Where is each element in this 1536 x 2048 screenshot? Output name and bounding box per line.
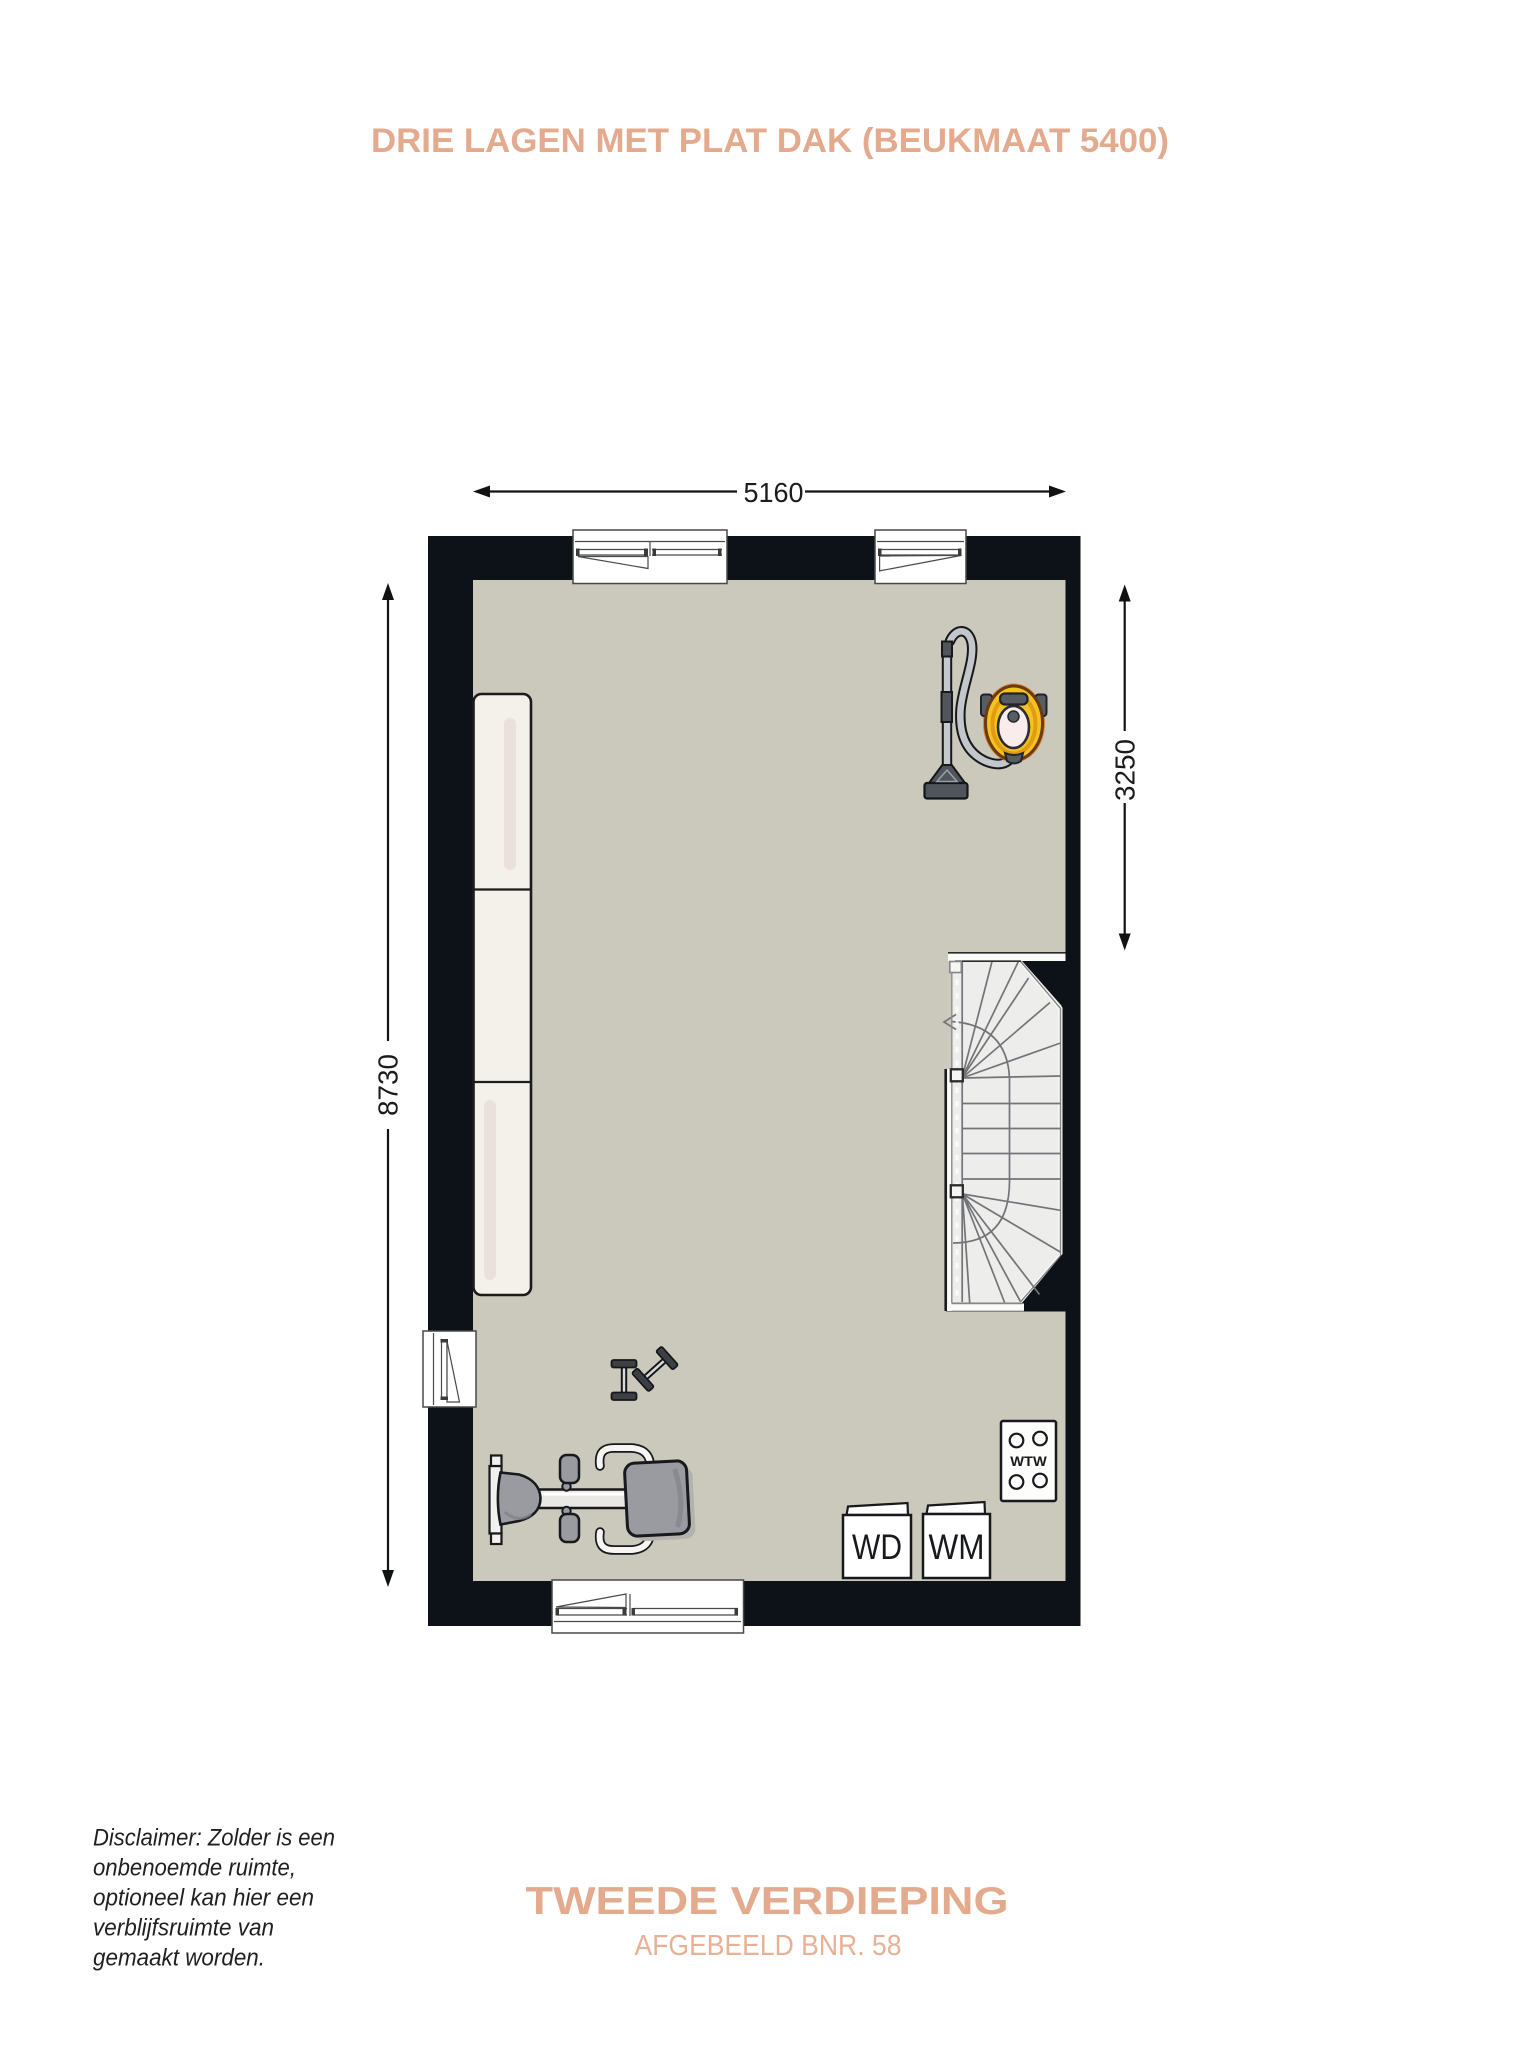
svg-text:gemaakt worden.: gemaakt worden. — [93, 1945, 265, 1972]
svg-text:WD: WD — [852, 1528, 902, 1567]
svg-text:verblijfsruimte van: verblijfsruimte van — [93, 1915, 274, 1942]
svg-text:optioneel kan hier een: optioneel kan hier een — [93, 1885, 314, 1912]
svg-text:8730: 8730 — [373, 1054, 404, 1116]
svg-text:WM: WM — [929, 1528, 985, 1567]
svg-text:3250: 3250 — [1110, 739, 1141, 801]
svg-text:Disclaimer: Zolder is een: Disclaimer: Zolder is een — [93, 1825, 335, 1852]
svg-text:WTW: WTW — [1010, 1453, 1047, 1469]
svg-text:onbenoemde ruimte,: onbenoemde ruimte, — [93, 1855, 296, 1882]
svg-text:DRIE LAGEN MET PLAT DAK (BEUKM: DRIE LAGEN MET PLAT DAK (BEUKMAAT 5400) — [371, 122, 1169, 160]
svg-text:AFGEBEELD BNR. 58: AFGEBEELD BNR. 58 — [635, 1930, 902, 1962]
svg-text:TWEEDE VERDIEPING: TWEEDE VERDIEPING — [526, 1880, 1009, 1923]
svg-text:5160: 5160 — [744, 477, 804, 508]
